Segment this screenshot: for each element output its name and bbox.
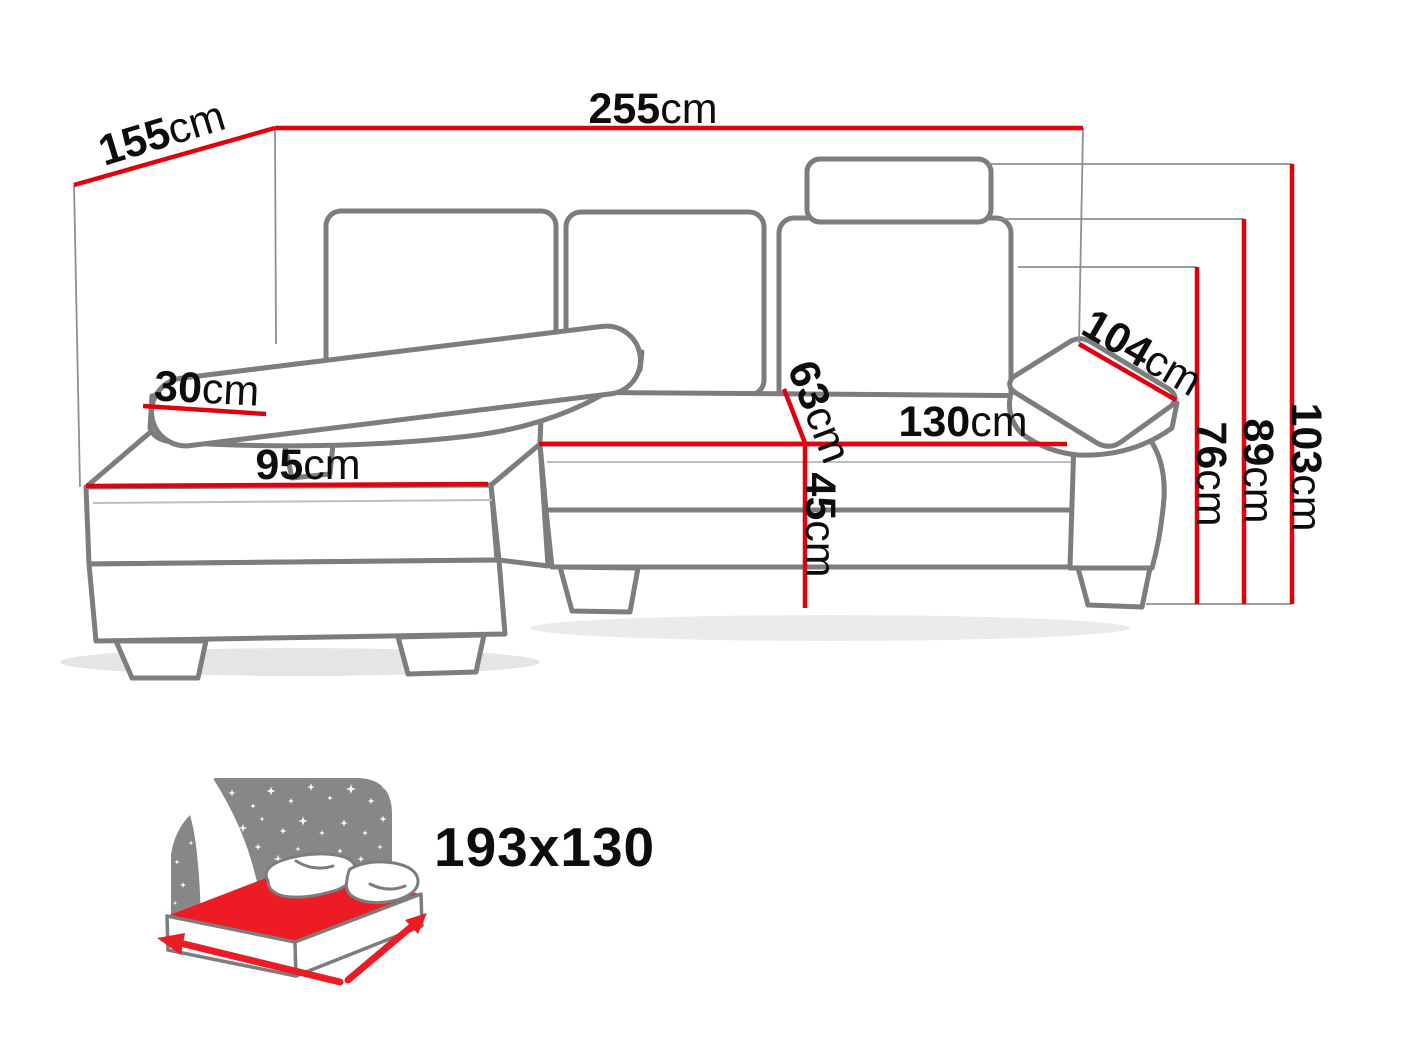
headrest	[807, 159, 991, 222]
label-total-depth: 155cm	[93, 92, 230, 176]
label-seat-width: 130cm	[898, 398, 1027, 446]
guide-corner-vertical	[275, 128, 276, 344]
sleeping-function-icon	[157, 778, 427, 982]
label-seat-height: 45cm	[796, 472, 844, 577]
star-icon	[226, 872, 231, 877]
star-icon	[235, 854, 240, 859]
chaise-foot-left	[116, 641, 206, 678]
label-armrest-width: 30cm	[153, 362, 261, 415]
label-backrest-height: 89cm	[1234, 418, 1282, 523]
right-arm-foot	[1078, 568, 1150, 607]
chaise-front	[86, 485, 497, 564]
label-chaise-length: 95cm	[255, 441, 360, 489]
pillow-right	[346, 862, 418, 903]
star-icon	[221, 813, 227, 819]
headboard-moon-wing	[171, 815, 201, 920]
sleeping-size-label: 193x130	[434, 816, 655, 878]
label-total-height: 103cm	[1282, 402, 1330, 531]
label-total-width: 255cm	[588, 85, 717, 133]
chaise-base	[89, 560, 505, 641]
guide-right-vertical	[1079, 128, 1083, 343]
diagram-page: 255cm 155cm 30cm 95cm 104cm 130cm 63cm 4…	[0, 0, 1408, 1056]
chaise-foot-right	[398, 635, 484, 674]
guide-left-vertical	[74, 185, 80, 487]
sofa-dimension-diagram: 255cm 155cm 30cm 95cm 104cm 130cm 63cm 4…	[0, 0, 1408, 1056]
star-icon	[216, 842, 223, 849]
shadow-seat	[530, 615, 1130, 641]
label-armrest-height: 76cm	[1187, 421, 1235, 526]
seat-foot-left	[560, 567, 638, 612]
